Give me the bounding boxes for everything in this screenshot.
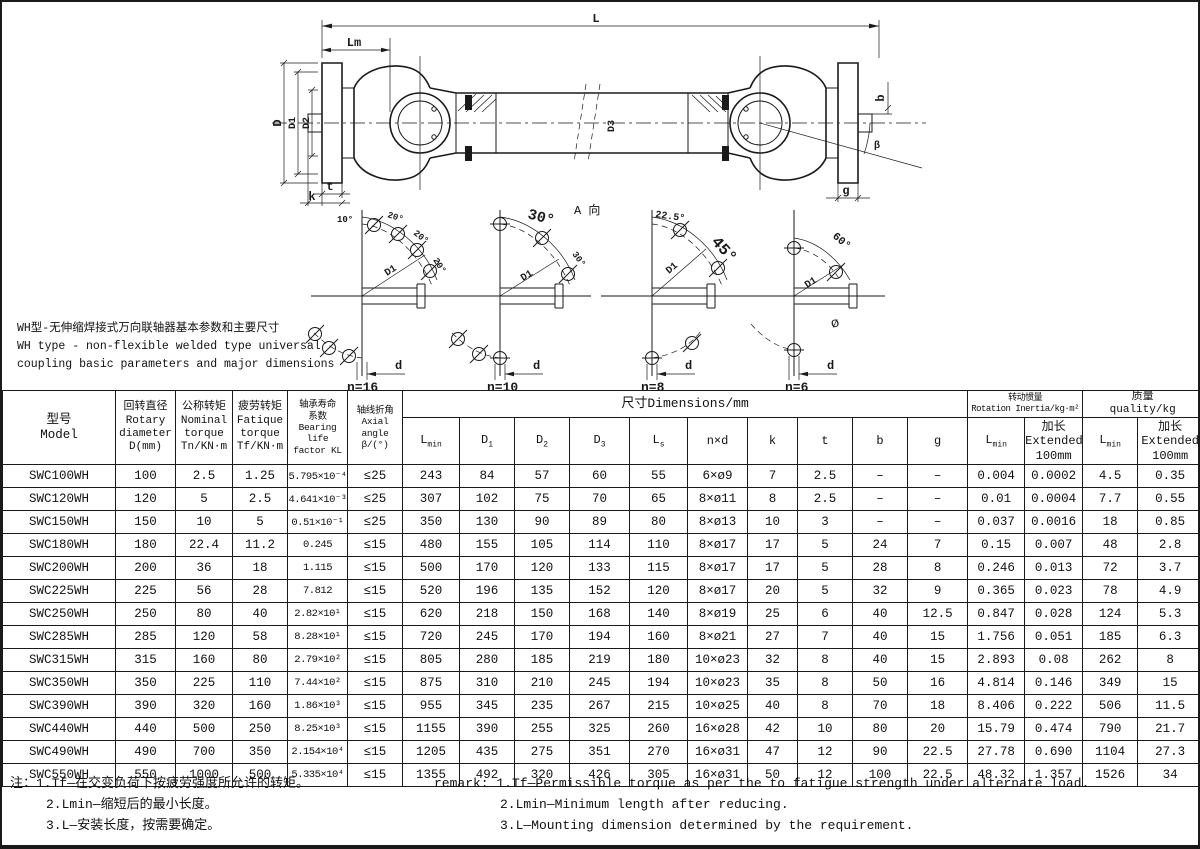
table-cell: 11.2 <box>233 534 288 557</box>
angle-label: 30° <box>570 250 587 269</box>
table-cell: – <box>853 488 908 511</box>
table-cell: 32 <box>748 649 798 672</box>
table-cell: – <box>853 511 908 534</box>
table-cell: ≤25 <box>348 511 403 534</box>
table-cell: 17 <box>748 534 798 557</box>
table-cell: – <box>908 511 968 534</box>
table-cell: 12.5 <box>908 603 968 626</box>
col-header-quality-extended: 加长 Extended 100mm <box>1138 418 1200 465</box>
table-cell: 500 <box>403 557 460 580</box>
table-cell: 875 <box>403 672 460 695</box>
table-cell: 130 <box>460 511 515 534</box>
table-cell: SWC200WH <box>3 557 116 580</box>
table-cell: 194 <box>630 672 688 695</box>
table-cell: 9 <box>908 580 968 603</box>
table-cell: 0.51×10⁻¹ <box>288 511 348 534</box>
table-cell: 5 <box>798 557 853 580</box>
dim-label-d2: D2 <box>302 117 313 129</box>
table-cell: 56 <box>176 580 233 603</box>
table-cell: ≤15 <box>348 626 403 649</box>
table-cell: ≤25 <box>348 465 403 488</box>
table-cell: 115 <box>630 557 688 580</box>
table-cell: 1.756 <box>968 626 1025 649</box>
radius-label-d1: D1 <box>664 261 680 277</box>
table-cell: 48 <box>1083 534 1138 557</box>
table-cell: 40 <box>853 649 908 672</box>
table-cell: 0.222 <box>1025 695 1083 718</box>
table-cell: 5.795×10⁻⁴ <box>288 465 348 488</box>
flange-diagram-n8: 22.5° 45° D1 d n=8 <box>597 204 747 394</box>
table-cell: 2.154×10⁴ <box>288 741 348 764</box>
table-row: SWC200WH20036181.115≤155001701201331158×… <box>3 557 1200 580</box>
table-cell: 34 <box>1138 764 1200 787</box>
col-header-ls: Ls <box>630 418 688 465</box>
table-cell: 315 <box>116 649 176 672</box>
table-cell: 1104 <box>1083 741 1138 764</box>
table-cell: 280 <box>460 649 515 672</box>
table-cell: 90 <box>853 741 908 764</box>
table-cell: 55 <box>630 465 688 488</box>
table-cell: ≤15 <box>348 672 403 695</box>
table-cell: 20 <box>908 718 968 741</box>
table-cell: 245 <box>570 672 630 695</box>
table-cell: 21.7 <box>1138 718 1200 741</box>
col-header-b: b <box>853 418 908 465</box>
table-cell: 3 <box>798 511 853 534</box>
table-cell: 349 <box>1083 672 1138 695</box>
table-cell: 8×ø17 <box>688 557 748 580</box>
table-cell: 15 <box>1138 672 1200 695</box>
table-cell: 105 <box>515 534 570 557</box>
table-cell: 219 <box>570 649 630 672</box>
table-cell: 805 <box>403 649 460 672</box>
table-row: SWC150WH1501050.51×10⁻¹≤253501309089808×… <box>3 511 1200 534</box>
table-cell: 7.7 <box>1083 488 1138 511</box>
table-cell: 100 <box>116 465 176 488</box>
table-cell: 250 <box>233 718 288 741</box>
table-cell: 7 <box>798 626 853 649</box>
table-cell: 0.474 <box>1025 718 1083 741</box>
table-cell: 351 <box>570 741 630 764</box>
table-cell: 7.44×10² <box>288 672 348 695</box>
table-cell: 135 <box>515 580 570 603</box>
table-cell: 2.5 <box>798 465 853 488</box>
table-cell: 8×ø19 <box>688 603 748 626</box>
dim-label-d: D <box>271 119 285 126</box>
table-cell: 140 <box>630 603 688 626</box>
table-cell: 435 <box>460 741 515 764</box>
table-cell: – <box>853 465 908 488</box>
bolt-dia-label-d: d <box>533 359 540 373</box>
table-row: SWC350WH3502251107.44×10²≤15875310210245… <box>3 672 1200 695</box>
datasheet-page: L Lm D D1 D2 D3 t k b g β A 向 <box>0 0 1200 849</box>
table-cell: 500 <box>176 718 233 741</box>
table-cell: 40 <box>853 626 908 649</box>
table-row: SWC120WH12052.54.641×10⁻³≤25307102757065… <box>3 488 1200 511</box>
col-header-inertia-extended: 加长 Extended 100mm <box>1025 418 1083 465</box>
table-cell: 8×ø17 <box>688 580 748 603</box>
table-cell: 160 <box>176 649 233 672</box>
table-cell: 255 <box>515 718 570 741</box>
table-cell: 260 <box>630 718 688 741</box>
table-cell: 8×ø21 <box>688 626 748 649</box>
table-cell: 285 <box>116 626 176 649</box>
table-row: SWC100WH1002.51.255.795×10⁻⁴≤25243845760… <box>3 465 1200 488</box>
col-header-quality-lmin: Lmin <box>1083 418 1138 465</box>
table-cell: SWC225WH <box>3 580 116 603</box>
table-cell: 0.55 <box>1138 488 1200 511</box>
table-cell: 0.01 <box>968 488 1025 511</box>
table-cell: 310 <box>460 672 515 695</box>
table-cell: 0.028 <box>1025 603 1083 626</box>
col-header-lmin: Lmin <box>403 418 460 465</box>
table-cell: 700 <box>176 741 233 764</box>
col-header-nxd: n×d <box>688 418 748 465</box>
table-cell: 243 <box>403 465 460 488</box>
table-cell: 4.814 <box>968 672 1025 695</box>
table-cell: 267 <box>570 695 630 718</box>
table-cell: 307 <box>403 488 460 511</box>
table-row: SWC180WH18022.411.20.245≤154801551051141… <box>3 534 1200 557</box>
table-cell: SWC315WH <box>3 649 116 672</box>
table-cell: 10 <box>176 511 233 534</box>
table-cell: 8×ø17 <box>688 534 748 557</box>
radius-label-d1: D1 <box>803 276 819 292</box>
table-cell: 194 <box>570 626 630 649</box>
table-cell: 10×ø23 <box>688 672 748 695</box>
dim-label-b: b <box>874 94 888 101</box>
remark-line: 2.Lmin—缩短后的最小长度。 <box>10 795 309 816</box>
table-cell: 27 <box>748 626 798 649</box>
table-cell: 4.641×10⁻³ <box>288 488 348 511</box>
table-cell: ≤15 <box>348 557 403 580</box>
table-cell: 6.3 <box>1138 626 1200 649</box>
table-cell: 196 <box>460 580 515 603</box>
table-cell: 42 <box>748 718 798 741</box>
table-cell: 350 <box>116 672 176 695</box>
table-row: SWC315WH315160802.79×10²≤158052801852191… <box>3 649 1200 672</box>
table-cell: 185 <box>1083 626 1138 649</box>
table-cell: 70 <box>570 488 630 511</box>
table-cell: 28 <box>233 580 288 603</box>
table-cell: 955 <box>403 695 460 718</box>
table-cell: 0.847 <box>968 603 1025 626</box>
remark-line: 3.L—Mounting dimension determined by the… <box>434 816 1089 837</box>
table-cell: 0.0002 <box>1025 465 1083 488</box>
table-cell: 225 <box>176 672 233 695</box>
table-cell: 8.406 <box>968 695 1025 718</box>
table-cell: 620 <box>403 603 460 626</box>
table-cell: 168 <box>570 603 630 626</box>
table-cell: 720 <box>403 626 460 649</box>
table-cell: 245 <box>460 626 515 649</box>
col-header-g: g <box>908 418 968 465</box>
table-cell: 218 <box>460 603 515 626</box>
table-cell: 16 <box>908 672 968 695</box>
table-cell: 0.037 <box>968 511 1025 534</box>
dim-label-g: g <box>842 184 849 198</box>
table-cell: 0.08 <box>1025 649 1083 672</box>
table-cell: 80 <box>630 511 688 534</box>
table-cell: 0.85 <box>1138 511 1200 534</box>
dim-label-lm: Lm <box>347 36 361 50</box>
table-cell: ≤15 <box>348 718 403 741</box>
table-cell: 58 <box>233 626 288 649</box>
table-cell: 270 <box>630 741 688 764</box>
table-cell: ≤15 <box>348 534 403 557</box>
table-cell: 0.35 <box>1138 465 1200 488</box>
table-cell: 180 <box>116 534 176 557</box>
phi-symbol: ø <box>829 315 841 333</box>
col-header-t: t <box>798 418 853 465</box>
table-cell: 155 <box>460 534 515 557</box>
table-cell: SWC390WH <box>3 695 116 718</box>
table-cell: ≤25 <box>348 488 403 511</box>
table-cell: 0.051 <box>1025 626 1083 649</box>
table-cell: 225 <box>116 580 176 603</box>
table-cell: 2.82×10¹ <box>288 603 348 626</box>
table-cell: – <box>908 465 968 488</box>
table-cell: 110 <box>630 534 688 557</box>
table-cell: 480 <box>403 534 460 557</box>
table-cell: 15.79 <box>968 718 1025 741</box>
table-cell: ≤15 <box>348 580 403 603</box>
table-cell: 15 <box>908 649 968 672</box>
table-cell: 215 <box>630 695 688 718</box>
description-block: WH型-无伸缩焊接式万向联轴器基本参数和主要尺寸 WH type - non-f… <box>17 320 334 373</box>
table-cell: 28 <box>853 557 908 580</box>
table-cell: 5 <box>233 511 288 534</box>
group-header-rotation-inertia: 转动惯量 Rotation Inertia/kg·m² <box>968 391 1083 418</box>
table-cell: 8 <box>798 695 853 718</box>
table-cell: 120 <box>630 580 688 603</box>
dim-label-k: k <box>308 190 315 204</box>
table-cell: 110 <box>233 672 288 695</box>
table-cell: 27.78 <box>968 741 1025 764</box>
angle-label: 45° <box>707 233 740 266</box>
table-cell: 35 <box>748 672 798 695</box>
table-cell: 11.5 <box>1138 695 1200 718</box>
table-cell: 70 <box>853 695 908 718</box>
table-cell: 10×ø25 <box>688 695 748 718</box>
table-cell: 8×ø13 <box>688 511 748 534</box>
table-cell: 6 <box>798 603 853 626</box>
flange-diagram-n6: 60° D1 ø d n=6 <box>739 204 889 394</box>
table-cell: 15 <box>908 626 968 649</box>
table-cell: 210 <box>515 672 570 695</box>
table-cell: 170 <box>460 557 515 580</box>
remark-line: 3.L—安装长度，按需要确定。 <box>10 816 309 837</box>
table-cell: 57 <box>515 465 570 488</box>
table-cell: 72 <box>1083 557 1138 580</box>
angle-label: 22.5° <box>654 209 685 225</box>
table-cell: ≤15 <box>348 603 403 626</box>
table-cell: 18 <box>1083 511 1138 534</box>
table-cell: 6×ø9 <box>688 465 748 488</box>
table-cell: 490 <box>116 741 176 764</box>
table-cell: 75 <box>515 488 570 511</box>
table-cell: 7.812 <box>288 580 348 603</box>
table-cell: 520 <box>403 580 460 603</box>
col-header-d3: D3 <box>570 418 630 465</box>
col-header-d2: D2 <box>515 418 570 465</box>
table-cell: 40 <box>233 603 288 626</box>
table-cell: 8 <box>908 557 968 580</box>
table-cell: 1526 <box>1083 764 1138 787</box>
remark-line: 2.Lmin—Minimum length after reducing. <box>434 795 1089 816</box>
table-cell: 114 <box>570 534 630 557</box>
table-cell: 250 <box>116 603 176 626</box>
table-cell: 3.7 <box>1138 557 1200 580</box>
table-cell: 0.013 <box>1025 557 1083 580</box>
dim-label-d3: D3 <box>607 120 618 132</box>
table-cell: 790 <box>1083 718 1138 741</box>
table-cell: 89 <box>570 511 630 534</box>
table-cell: 160 <box>233 695 288 718</box>
angle-label: 10° <box>337 215 353 225</box>
table-cell: 0.146 <box>1025 672 1083 695</box>
table-cell: 2.5 <box>233 488 288 511</box>
table-cell: 262 <box>1083 649 1138 672</box>
table-cell: 10 <box>798 718 853 741</box>
table-cell: 350 <box>403 511 460 534</box>
table-cell: 5 <box>798 534 853 557</box>
table-cell: 1205 <box>403 741 460 764</box>
dim-label-d1: D1 <box>288 117 299 129</box>
table-cell: 2.79×10² <box>288 649 348 672</box>
table-cell: ≤15 <box>348 695 403 718</box>
remarks-zh: 注：1.Tf—在交变负荷下按疲劳强度所允许的转矩。 2.Lmin—缩短后的最小长… <box>10 774 309 836</box>
table-cell: ≤15 <box>348 741 403 764</box>
table-cell: SWC250WH <box>3 603 116 626</box>
table-cell: 102 <box>460 488 515 511</box>
table-cell: 150 <box>515 603 570 626</box>
table-cell: 0.004 <box>968 465 1025 488</box>
table-cell: 65 <box>630 488 688 511</box>
col-header-model: 型号 Model <box>3 391 116 465</box>
dim-label-beta: β <box>874 140 880 152</box>
table-row: SWC250WH25080402.82×10¹≤1562021815016814… <box>3 603 1200 626</box>
col-header-bearing-life: 轴承寿命 系数 Bearing life factor KL <box>288 391 348 465</box>
table-row: SWC390WH3903201601.86×10³≤15955345235267… <box>3 695 1200 718</box>
table-cell: 2.8 <box>1138 534 1200 557</box>
table-cell: SWC100WH <box>3 465 116 488</box>
radius-label-d1: D1 <box>383 264 399 280</box>
table-cell: 0.245 <box>288 534 348 557</box>
table-cell: 47 <box>748 741 798 764</box>
table-cell: 8×ø11 <box>688 488 748 511</box>
table-cell: 40 <box>853 603 908 626</box>
remark-line: 注：1.Tf—在交变负荷下按疲劳强度所允许的转矩。 <box>10 774 309 795</box>
table-cell: 325 <box>570 718 630 741</box>
table-row: SWC440WH4405002508.25×10³≤15115539025532… <box>3 718 1200 741</box>
table-cell: 0.023 <box>1025 580 1083 603</box>
table-cell: 1155 <box>403 718 460 741</box>
dim-label-t: t <box>326 180 333 194</box>
table-cell: – <box>908 488 968 511</box>
table-cell: 22.4 <box>176 534 233 557</box>
table-cell: 2.5 <box>798 488 853 511</box>
dim-label-l: L <box>592 12 599 26</box>
table-cell: 275 <box>515 741 570 764</box>
table-cell: 24 <box>853 534 908 557</box>
table-cell: ≤15 <box>348 649 403 672</box>
description-en-1: WH type - non-flexible welded type unive… <box>17 338 334 356</box>
table-cell: 0.365 <box>968 580 1025 603</box>
table-cell: 1.25 <box>233 465 288 488</box>
table-cell: 22.5 <box>908 741 968 764</box>
table-cell: 25 <box>748 603 798 626</box>
table-cell: 16×ø28 <box>688 718 748 741</box>
table-cell: 80 <box>176 603 233 626</box>
table-row: SWC225WH22556287.812≤155201961351521208×… <box>3 580 1200 603</box>
table-cell: 350 <box>233 741 288 764</box>
table-cell: 60 <box>570 465 630 488</box>
bolt-dia-label-d: d <box>685 359 692 373</box>
table-cell: 8 <box>798 649 853 672</box>
table-row: SWC490WH4907003502.154×10⁴≤1512054352753… <box>3 741 1200 764</box>
table-cell: 20 <box>748 580 798 603</box>
table-cell: 320 <box>176 695 233 718</box>
table-cell: 133 <box>570 557 630 580</box>
table-cell: 78 <box>1083 580 1138 603</box>
table-cell: 8 <box>748 488 798 511</box>
table-cell: SWC285WH <box>3 626 116 649</box>
table-cell: 36 <box>176 557 233 580</box>
col-header-nominal-torque: 公称转矩 Nominal torque Tn/KN·m <box>176 391 233 465</box>
table-cell: 8 <box>1138 649 1200 672</box>
table-cell: 0.15 <box>968 534 1025 557</box>
group-header-quality: 质量 quality/kg <box>1083 391 1200 418</box>
col-header-inertia-lmin: Lmin <box>968 418 1025 465</box>
table-cell: 185 <box>515 649 570 672</box>
group-header-dimensions: 尺寸Dimensions/mm <box>403 391 968 418</box>
col-header-fatigue-torque: 疲劳转矩 Fatique torque Tf/KN·m <box>233 391 288 465</box>
table-cell: 120 <box>116 488 176 511</box>
description-en-2: coupling basic parameters and major dime… <box>17 356 334 374</box>
table-cell: 8 <box>798 672 853 695</box>
table-cell: 180 <box>630 649 688 672</box>
table-cell: 0.007 <box>1025 534 1083 557</box>
remark-line: remark: 1.Tf—Permissible torque as per t… <box>434 774 1089 795</box>
table-cell: 390 <box>116 695 176 718</box>
table-cell: 152 <box>570 580 630 603</box>
flange-diagram-n10: 30° 30° D1 d n=10 <box>445 204 595 394</box>
table-cell: 27.3 <box>1138 741 1200 764</box>
bolt-dia-label-d: d <box>395 359 402 373</box>
bolt-dia-label-d: d <box>827 359 834 373</box>
table-cell: 5.3 <box>1138 603 1200 626</box>
table-cell: 10 <box>748 511 798 534</box>
table-cell: SWC440WH <box>3 718 116 741</box>
table-cell: 506 <box>1083 695 1138 718</box>
table-cell: 124 <box>1083 603 1138 626</box>
table-cell: 12 <box>798 741 853 764</box>
table-cell: SWC490WH <box>3 741 116 764</box>
table-cell: 0.0004 <box>1025 488 1083 511</box>
table-cell: SWC350WH <box>3 672 116 695</box>
table-cell: 120 <box>176 626 233 649</box>
parameter-table: 型号 Model 回转直径 Rotary diameter D(mm) 公称转矩… <box>2 390 1200 787</box>
table-cell: 2.893 <box>968 649 1025 672</box>
table-row: SWC285WH285120588.28×10¹≤157202451701941… <box>3 626 1200 649</box>
angle-label: 30° <box>526 206 556 229</box>
table-cell: 50 <box>853 672 908 695</box>
col-header-rotary-diameter: 回转直径 Rotary diameter D(mm) <box>116 391 176 465</box>
table-cell: 390 <box>460 718 515 741</box>
table-cell: 32 <box>853 580 908 603</box>
description-zh: WH型-无伸缩焊接式万向联轴器基本参数和主要尺寸 <box>17 320 334 338</box>
